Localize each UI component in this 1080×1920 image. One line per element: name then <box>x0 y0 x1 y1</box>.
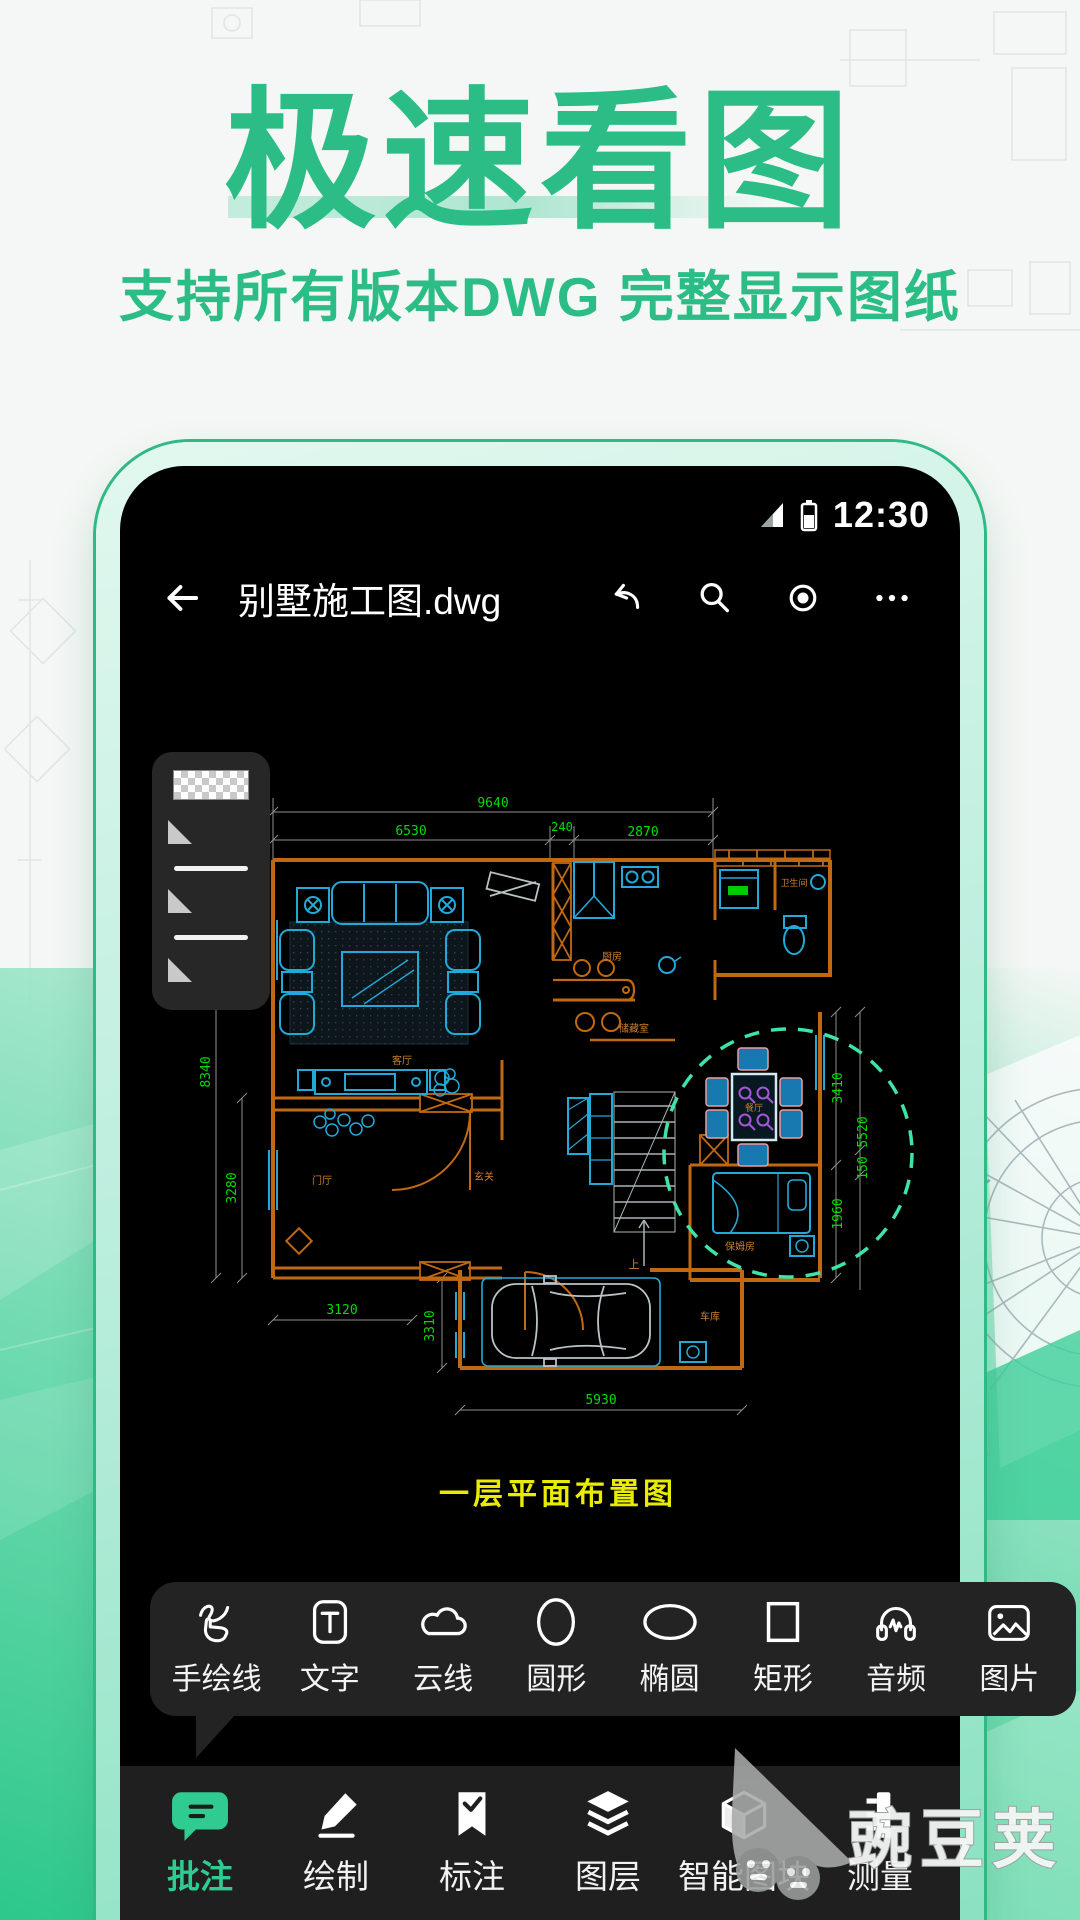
undo-button[interactable] <box>603 576 647 620</box>
tab-draw[interactable]: 绘制 <box>268 1786 404 1920</box>
tool-image[interactable]: 图片 <box>953 1595 1066 1698</box>
ruler-icon <box>851 1786 909 1844</box>
cloud-line-icon <box>416 1595 470 1649</box>
tool-label: 图片 <box>979 1654 1039 1698</box>
signal-icon <box>759 501 785 529</box>
file-name: 别墅施工图.dwg <box>238 571 501 625</box>
freehand-line-icon <box>190 1595 244 1649</box>
dim-garage: 5930 <box>585 1393 616 1408</box>
room-entry: 玄关 <box>474 1170 494 1183</box>
highlight-circle <box>664 1029 912 1277</box>
tool-label: 音频 <box>866 1654 926 1698</box>
tool-ellipse[interactable]: 椭圆 <box>613 1595 726 1698</box>
dim-right-width: 2870 <box>627 825 658 840</box>
tab-label: 智能图块 <box>678 1850 810 1898</box>
dim-bottom-left: 3120 <box>326 1303 357 1318</box>
pencil-icon <box>307 1786 365 1844</box>
tab-label: 测量 <box>847 1850 913 1898</box>
tab-annotate[interactable]: 批注 <box>132 1786 268 1920</box>
tab-measure[interactable]: 测量 <box>812 1786 948 1920</box>
search-icon <box>692 576 736 620</box>
tab-label: 绘制 <box>303 1850 369 1898</box>
undo-icon <box>603 576 647 620</box>
tool-label: 矩形 <box>753 1654 813 1698</box>
tab-mark[interactable]: 标注 <box>404 1786 540 1920</box>
dim-right-mid: 5520 <box>856 1116 871 1147</box>
record-icon <box>781 576 825 620</box>
tab-label: 标注 <box>439 1850 505 1898</box>
record-button[interactable] <box>781 576 825 620</box>
cube-icon <box>715 1786 773 1844</box>
living-rug <box>290 922 468 1044</box>
dim-right-small: 150 <box>856 1156 871 1179</box>
status-time: 12:30 <box>833 494 930 536</box>
back-arrow-icon <box>160 575 204 621</box>
popup-tail <box>196 1714 236 1758</box>
tool-label: 云线 <box>413 1654 473 1698</box>
audio-icon <box>869 1595 923 1649</box>
drawing-caption: 一层平面布置图 <box>439 1478 677 1511</box>
rectangle-icon <box>756 1595 810 1649</box>
frame-decor <box>487 872 540 901</box>
ellipse-icon <box>643 1595 697 1649</box>
tab-layers[interactable]: 图层 <box>540 1786 676 1920</box>
dim-left-width: 6530 <box>395 824 426 839</box>
dim-right-lower: 1960 <box>831 1198 846 1229</box>
bookmark-check-icon <box>443 1786 501 1844</box>
room-nanny: 保姆房 <box>725 1240 755 1253</box>
tab-label: 批注 <box>167 1850 233 1898</box>
page-subtitle: 支持所有版本DWG 完整显示图纸 <box>0 252 1080 332</box>
tool-audio[interactable]: 音频 <box>840 1595 953 1698</box>
page-title: 极速看图 <box>0 38 1080 258</box>
room-foyer: 门厅 <box>312 1174 332 1187</box>
tab-smart-blocks[interactable]: 智能图块 <box>676 1786 812 1920</box>
dim-mid-width: 240 <box>551 820 573 834</box>
room-bathroom: 卫生间 <box>780 877 807 888</box>
triangle-marker-icon[interactable] <box>168 889 192 913</box>
tool-cloud-line[interactable]: 云线 <box>387 1595 500 1698</box>
line-width-option[interactable] <box>174 866 248 871</box>
washer-detail <box>728 886 748 895</box>
triangle-marker-icon[interactable] <box>168 958 192 982</box>
search-button[interactable] <box>692 576 736 620</box>
car <box>492 1276 650 1366</box>
more-icon <box>870 576 914 620</box>
dim-left-lower: 3280 <box>225 1172 240 1203</box>
room-garage: 车库 <box>700 1310 720 1323</box>
layers-icon <box>579 1786 637 1844</box>
dim-total-width: 9640 <box>477 796 508 811</box>
tab-label: 图层 <box>575 1850 641 1898</box>
bottom-tab-bar: 批注 绘制 标注 图层 <box>120 1766 960 1920</box>
tool-label: 手绘线 <box>172 1654 262 1698</box>
tool-label: 椭圆 <box>640 1654 700 1698</box>
tool-rectangle[interactable]: 矩形 <box>726 1595 839 1698</box>
room-kitchen: 厨房 <box>602 950 622 963</box>
tool-circle[interactable]: 圆形 <box>500 1595 613 1698</box>
status-bar: 12:30 <box>759 494 930 536</box>
battery-icon <box>799 498 819 532</box>
image-icon <box>982 1595 1036 1649</box>
circle-icon <box>529 1595 583 1649</box>
room-storage: 储藏室 <box>619 1022 649 1035</box>
stairs-up-label: 上 <box>629 1258 640 1271</box>
tool-freehand-line[interactable]: 手绘线 <box>160 1595 273 1698</box>
dim-right-upper: 3410 <box>831 1072 846 1103</box>
transparent-checker-swatch[interactable] <box>173 770 249 800</box>
text-icon <box>303 1595 357 1649</box>
tool-label: 文字 <box>300 1654 360 1698</box>
triangle-marker-icon[interactable] <box>168 820 192 844</box>
back-button[interactable] <box>160 576 204 620</box>
more-button[interactable] <box>870 576 914 620</box>
tool-text[interactable]: 文字 <box>273 1595 386 1698</box>
tool-label: 圆形 <box>526 1654 586 1698</box>
dim-bottom-mid: 3310 <box>423 1310 438 1341</box>
appbar-actions <box>603 576 914 620</box>
line-width-option[interactable] <box>174 935 248 940</box>
dim-left-upper: 8340 <box>199 1056 214 1087</box>
page: 极速看图 支持所有版本DWG 完整显示图纸 12:30 <box>0 0 1080 1920</box>
annotation-tool-popup: 手绘线 文字 云线 圆形 <box>150 1582 1076 1716</box>
room-living: 客厅 <box>392 1054 412 1067</box>
line-style-panel <box>152 752 270 1010</box>
room-dining: 餐厅 <box>745 1102 763 1113</box>
comment-bubble-icon <box>171 1786 229 1844</box>
